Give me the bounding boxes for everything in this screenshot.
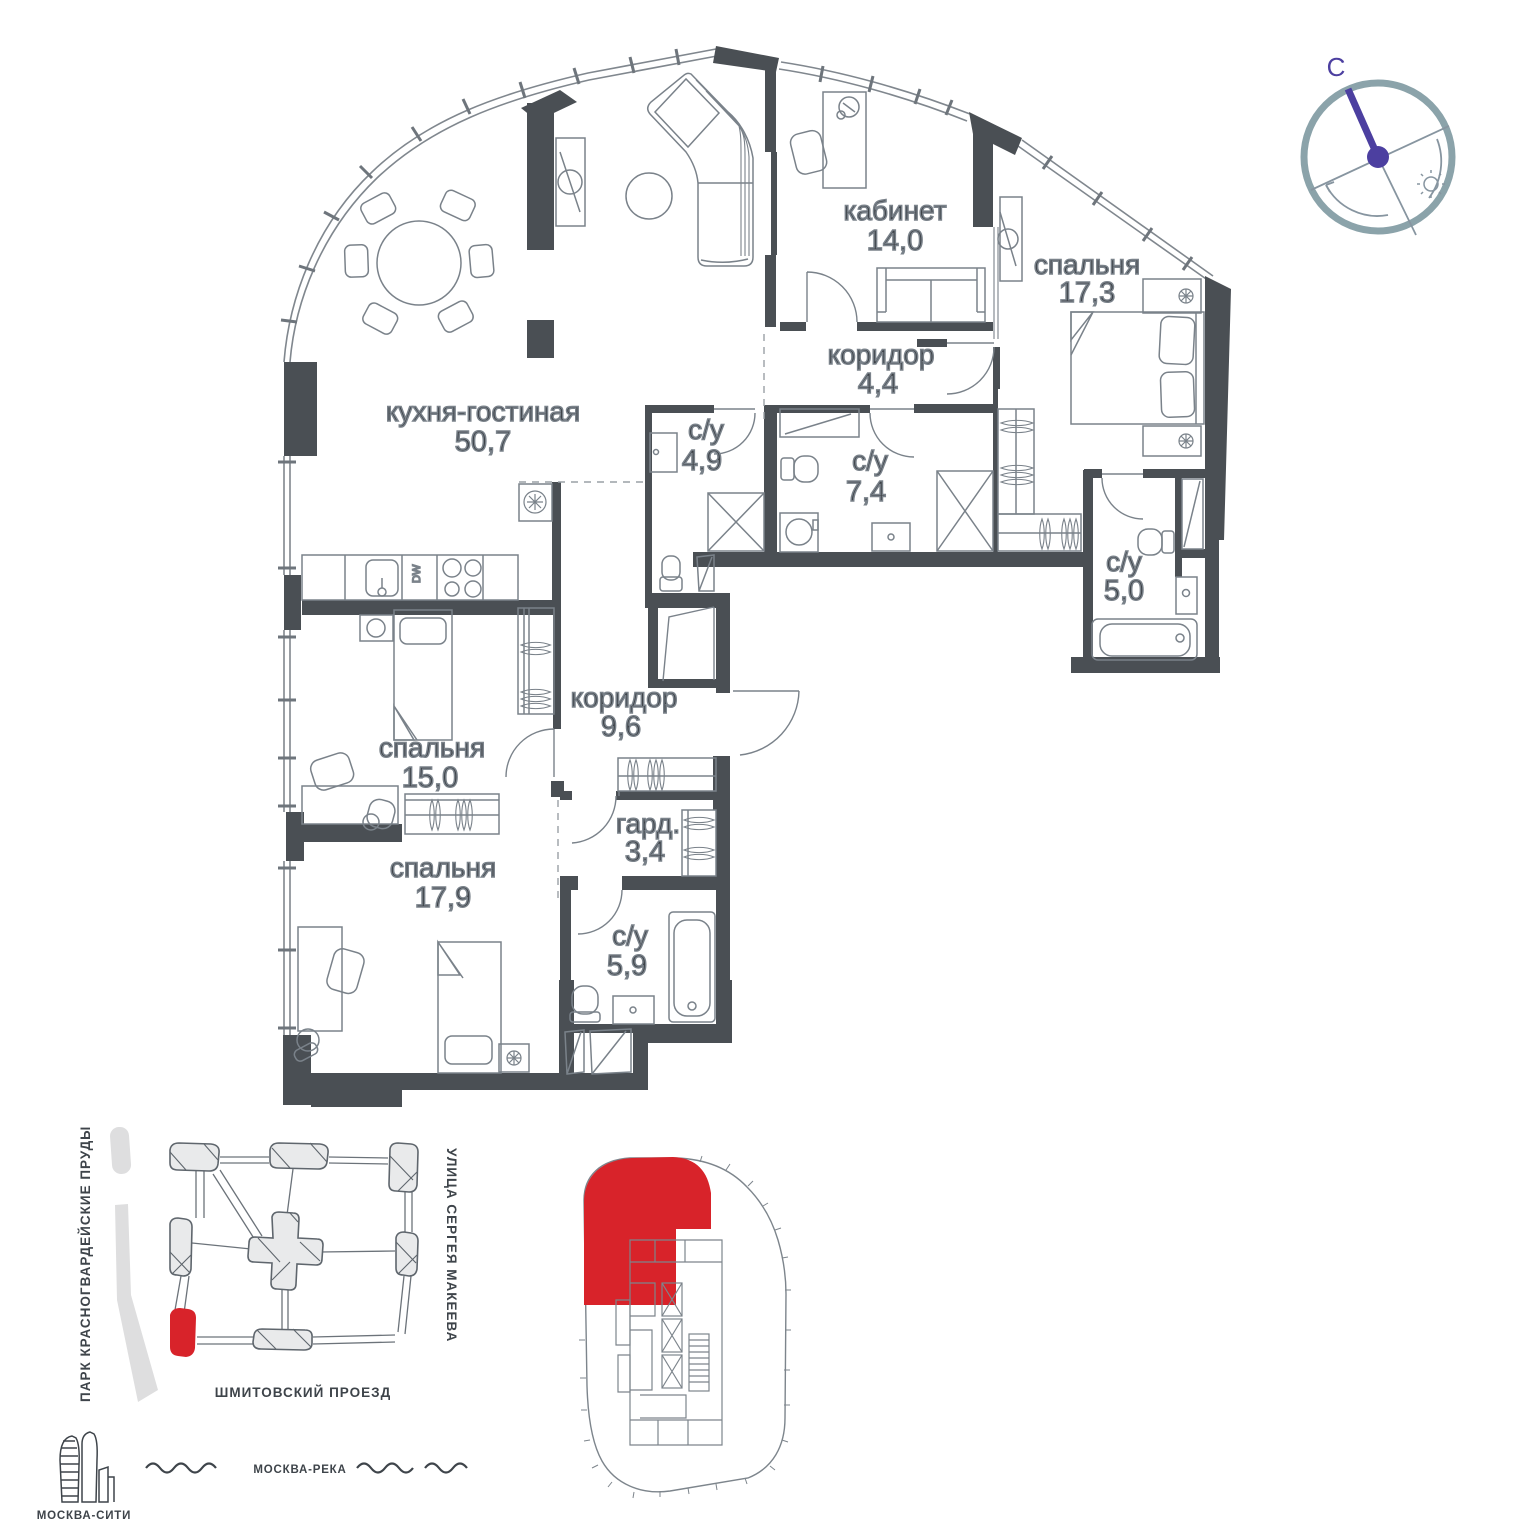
svg-text:5,0: 5,0 xyxy=(1104,575,1144,607)
svg-text:с/у: с/у xyxy=(852,445,888,476)
svg-text:кухня-гостиная: кухня-гостиная xyxy=(386,396,580,427)
svg-text:50,7: 50,7 xyxy=(455,426,511,458)
svg-text:спальня: спальня xyxy=(1034,249,1140,280)
svg-text:кабинет: кабинет xyxy=(843,195,946,226)
svg-text:гард.: гард. xyxy=(616,808,680,839)
svg-text:ШМИТОВСКИЙ ПРОЕЗД: ШМИТОВСКИЙ ПРОЕЗД xyxy=(215,1385,391,1400)
svg-text:ПАРК КРАСНОГВАРДЕЙСКИЕ ПРУДЫ: ПАРК КРАСНОГВАРДЕЙСКИЕ ПРУДЫ xyxy=(78,1126,93,1402)
svg-text:МОСКВА-СИТИ: МОСКВА-СИТИ xyxy=(37,1510,131,1522)
svg-text:7,4: 7,4 xyxy=(846,476,886,508)
svg-text:15,0: 15,0 xyxy=(402,762,458,794)
svg-text:17,3: 17,3 xyxy=(1059,277,1115,309)
svg-text:МОСКВА-РЕКА: МОСКВА-РЕКА xyxy=(253,1464,346,1476)
svg-text:14,0: 14,0 xyxy=(867,225,923,257)
svg-text:3,4: 3,4 xyxy=(625,836,665,868)
svg-text:с/у: с/у xyxy=(688,414,724,445)
svg-text:17,9: 17,9 xyxy=(415,882,471,914)
svg-text:спальня: спальня xyxy=(390,852,496,883)
svg-text:4,4: 4,4 xyxy=(858,368,898,400)
svg-text:УЛИЦА СЕРГЕЯ МАКЕЕВА: УЛИЦА СЕРГЕЯ МАКЕЕВА xyxy=(444,1148,459,1342)
svg-text:4,9: 4,9 xyxy=(682,445,722,477)
svg-text:коридор: коридор xyxy=(571,682,678,713)
svg-text:5,9: 5,9 xyxy=(607,950,647,982)
svg-text:с/у: с/у xyxy=(612,920,648,951)
svg-text:С: С xyxy=(1327,52,1346,82)
svg-text:спальня: спальня xyxy=(379,732,485,763)
svg-text:DW: DW xyxy=(411,564,423,583)
svg-text:9,6: 9,6 xyxy=(601,711,641,743)
svg-text:коридор: коридор xyxy=(828,339,935,370)
svg-text:с/у: с/у xyxy=(1106,546,1142,577)
